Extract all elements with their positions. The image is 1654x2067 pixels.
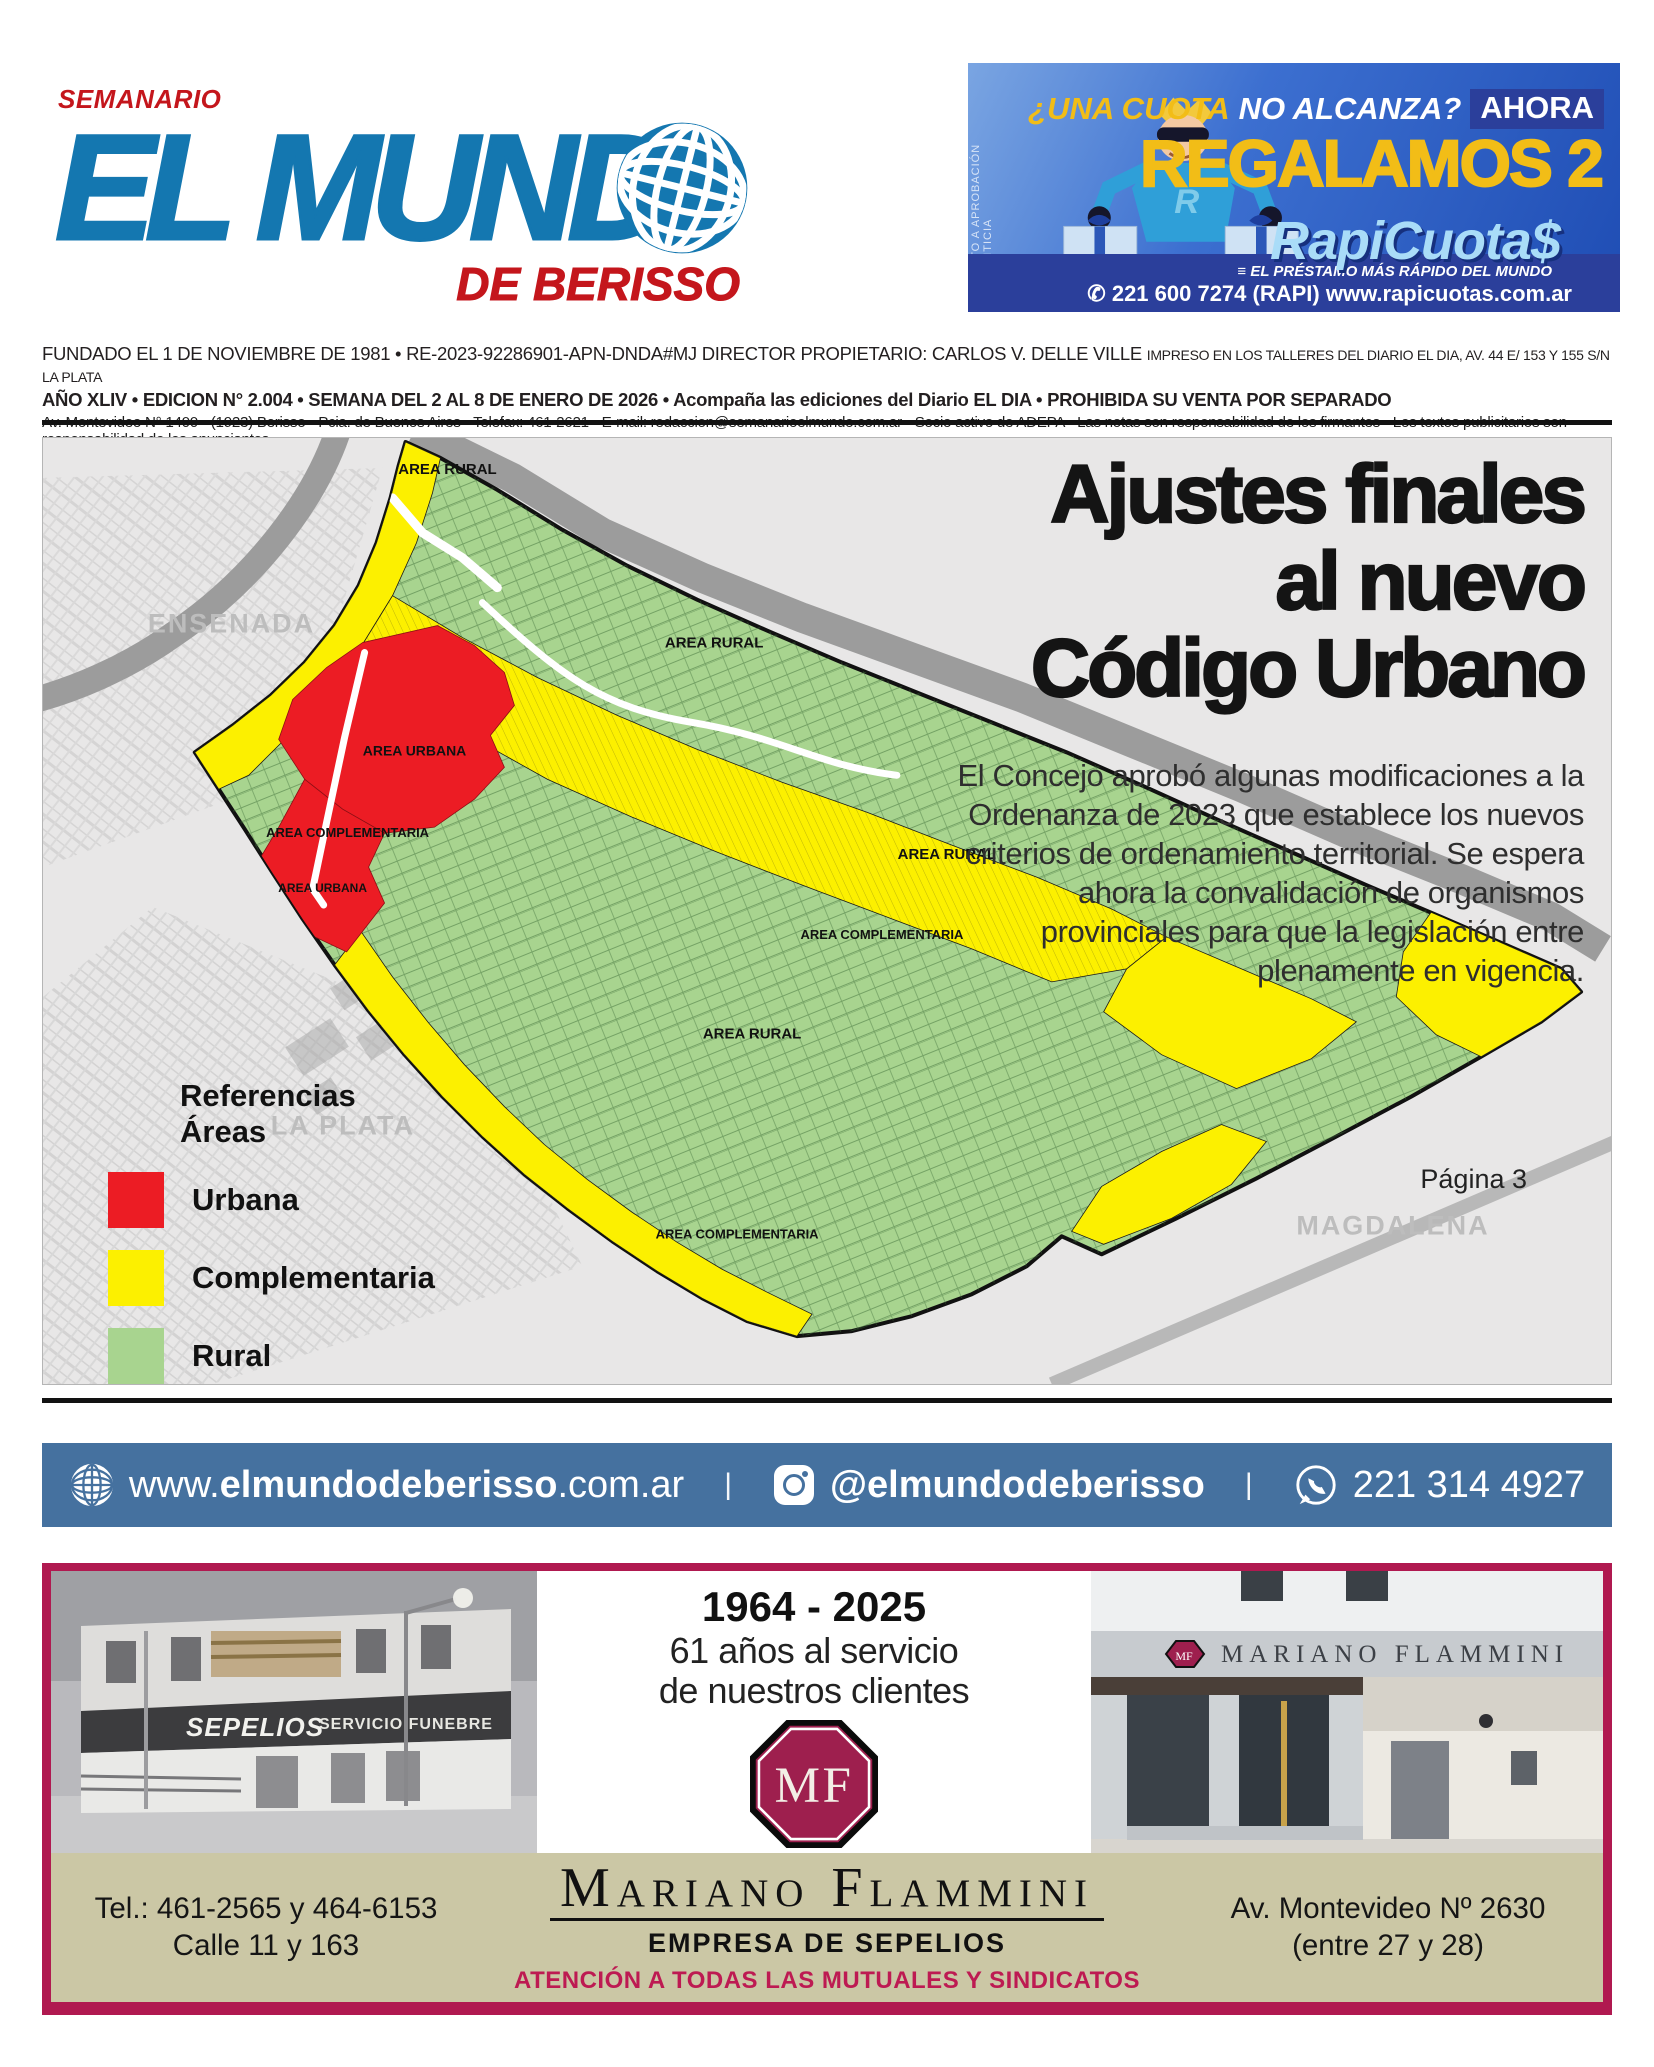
folio-line2: AÑO XLIV • EDICION N° 2.004 • SEMANA DEL… [42, 389, 1612, 411]
magdalena-label: MAGDALENA [1296, 1210, 1489, 1240]
instagram-icon [772, 1463, 816, 1507]
flammini-ad-footer: Tel.: 461-2565 y 464-6153 Calle 11 y 163… [51, 1853, 1603, 2002]
ad-headline-white: NO ALCANZA? [1239, 91, 1462, 127]
legend-item-complementaria: Complementaria [108, 1250, 435, 1306]
page-reference: Página 3 [1420, 1164, 1527, 1195]
flammini-address: Av. Montevideo Nº 2630 (entre 27 y 28) [1173, 1891, 1603, 1965]
area-urbana-label: AREA URBANA [278, 881, 367, 895]
headline-line2: al nuevo [784, 539, 1584, 626]
urbana-label: Urbana [192, 1182, 299, 1218]
article-deck: El Concejo aprobó algunas modificaciones… [929, 756, 1584, 990]
instagram-handle: @elmundodeberisso [830, 1464, 1205, 1507]
ad-badge: AHORA [1470, 89, 1604, 129]
globe-o-icon [612, 118, 752, 258]
storefront-photo-color: MF MARIANO FLAMMINI [1091, 1571, 1603, 1853]
globe-icon [69, 1462, 115, 1508]
instagram-group: @elmundodeberisso [772, 1463, 1205, 1507]
address-line2: (entre 27 y 28) [1173, 1928, 1603, 1965]
area-rural-label: AREA RURAL [398, 461, 496, 478]
funeral-home-photo-bw: SEPELIOS SERVICIO FUNEBRE [51, 1571, 537, 1853]
urbana-swatch [108, 1172, 164, 1228]
headline-line3: Código Urbano [784, 626, 1584, 713]
article-headline: Ajustes finales al nuevo Código Urbano [784, 452, 1584, 713]
ad-contact: ✆ 221 600 7274 (RAPI) www.rapicuotas.com… [1087, 281, 1572, 307]
website-group: www.elmundodeberisso.com.ar [69, 1462, 684, 1508]
phones-line2: Calle 11 y 163 [51, 1928, 481, 1965]
flammini-ad-center: 1964 - 2025 61 años al servicio de nuest… [537, 1571, 1091, 1853]
anniversary-years: 1964 - 2025 [537, 1583, 1091, 1631]
service-line2: de nuestros clientes [537, 1671, 1091, 1711]
mf-initials: MF [774, 1757, 853, 1814]
whatsapp-icon [1293, 1462, 1339, 1508]
sepelios-sign: SEPELIOS [186, 1712, 324, 1742]
mf-octagon-logo: MF [750, 1720, 878, 1848]
ad-headline-yellow: ¿UNA CUOTA [1028, 91, 1229, 127]
ad-big-line: REGALAMOS 2 [1140, 125, 1602, 201]
newspaper-front-page: SEMANARIO EL MUND DE BERISSO SUJETO A AP… [0, 0, 1654, 2067]
legend-item-rural: Rural [108, 1328, 435, 1384]
phone-number: 221 314 4927 [1353, 1464, 1585, 1507]
flammini-note: ATENCIÓN A TODAS LAS MUTUALES Y SINDICAT… [481, 1967, 1173, 1995]
flammini-ad: SEPELIOS SERVICIO FUNEBRE 1964 - 2025 61… [42, 1563, 1612, 2015]
phones-line1: Tel.: 461-2565 y 464-6153 [51, 1891, 481, 1928]
flammini-name: Mariano Flammini [550, 1860, 1104, 1921]
complementaria-label: Complementaria [192, 1260, 435, 1296]
divider-rule [42, 1398, 1612, 1403]
area-rural-label: AREA RURAL [703, 1026, 801, 1043]
rural-label: Rural [192, 1338, 271, 1374]
address-line1: Av. Montevideo Nº 2630 [1173, 1891, 1603, 1928]
rural-swatch [108, 1328, 164, 1384]
masthead-subtitle: DE BERISSO [370, 257, 740, 311]
rapicuotas-brand: RapiCuota$ [1270, 210, 1560, 272]
masthead-title: EL MUND [55, 112, 666, 262]
flammini-phones: Tel.: 461-2565 y 464-6153 Calle 11 y 163 [51, 1891, 481, 1965]
map-legend: Referencias Áreas Urbana Complementaria … [108, 1078, 435, 1384]
contact-bar: www.elmundodeberisso.com.ar | @elmundode… [42, 1443, 1612, 1527]
svg-text:MF: MF [1175, 1649, 1193, 1663]
legend-item-urbana: Urbana [108, 1172, 435, 1228]
folio-line1: FUNDADO EL 1 DE NOVIEMBRE DE 1981 • RE-2… [42, 343, 1612, 387]
flammini-identity: Mariano Flammini EMPRESA DE SEPELIOS ATE… [481, 1860, 1173, 1995]
area-rural-label: AREA RURAL [665, 635, 763, 652]
area-complementaria-label: AREA COMPLEMENTARIA [266, 825, 430, 840]
flammini-subtitle: EMPRESA DE SEPELIOS [481, 1928, 1173, 1959]
lead-article: AREA RURAL AREA RURAL AREA RURAL AREA RU… [42, 437, 1612, 1385]
storefront-sign: MARIANO FLAMMINI [1221, 1641, 1569, 1668]
folio-block: FUNDADO EL 1 DE NOVIEMBRE DE 1981 • RE-2… [42, 343, 1612, 448]
area-urbana-label: AREA URBANA [363, 742, 467, 758]
divider-rule [42, 420, 1612, 425]
flammini-photos-row: SEPELIOS SERVICIO FUNEBRE 1964 - 2025 61… [51, 1571, 1603, 1853]
separator: | [1245, 1468, 1253, 1502]
headline-line1: Ajustes finales [784, 452, 1584, 539]
website-url: www.elmundodeberisso.com.ar [129, 1464, 684, 1507]
ad-headline: ¿UNA CUOTA NO ALCANZA? AHORA [1028, 89, 1604, 129]
ensenada-label: ENSENADA [148, 609, 315, 639]
complementaria-swatch [108, 1250, 164, 1306]
service-line1: 61 años al servicio [537, 1631, 1091, 1671]
legend-title: Referencias Áreas [180, 1078, 435, 1150]
separator: | [724, 1468, 732, 1502]
rapicuotas-ad: SUJETO A APROBACIÓN CREDITICIA R ¿UNA CU… [968, 63, 1620, 312]
phone-group: 221 314 4927 [1293, 1462, 1585, 1508]
area-complementaria-label: AREA COMPLEMENTARIA [656, 1226, 820, 1241]
